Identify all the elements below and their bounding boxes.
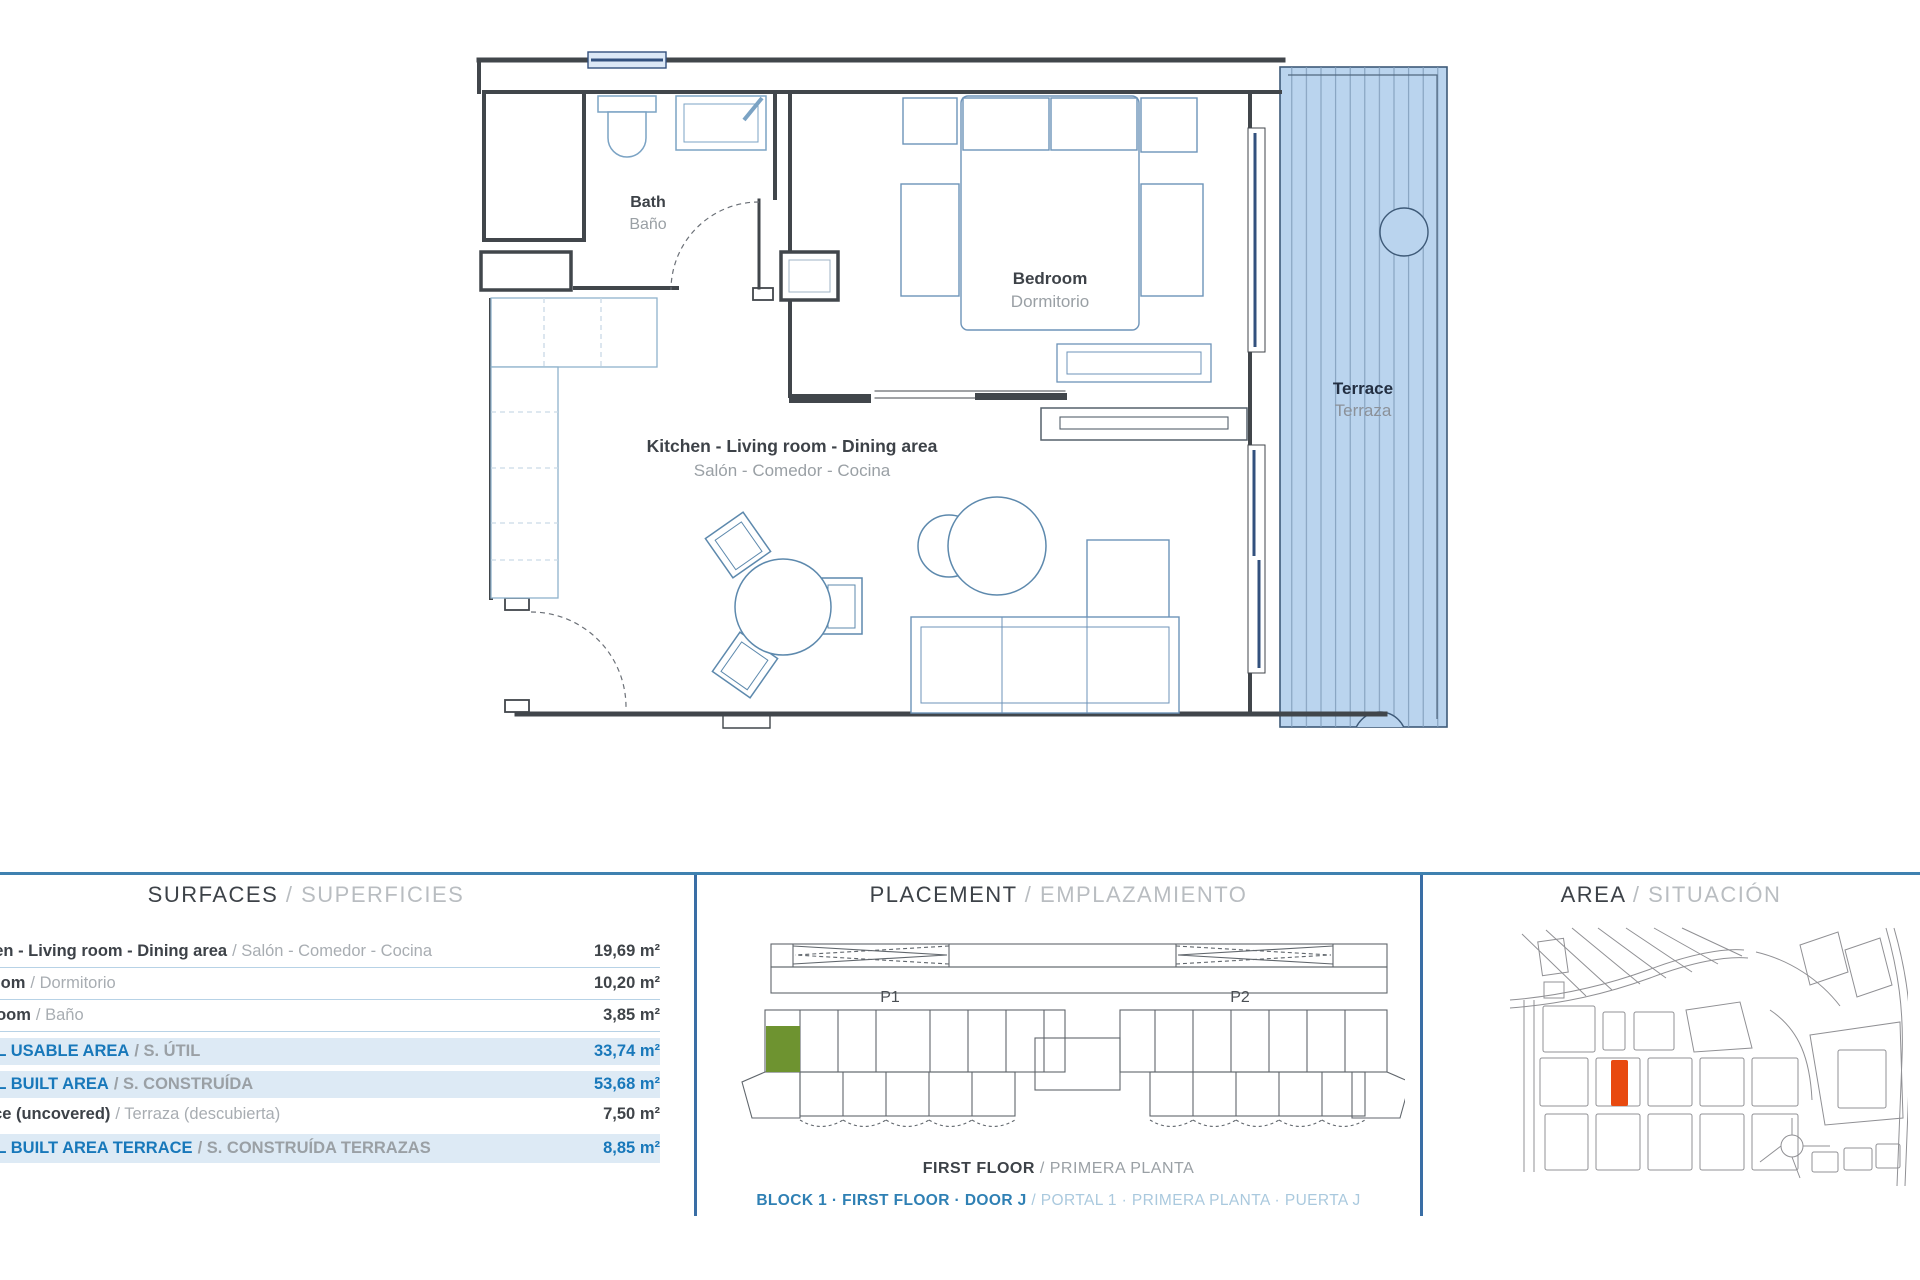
bedroom-label-es: Dormitorio bbox=[1011, 292, 1089, 311]
surface-row: Kitchen - Living room - Dining area Saló… bbox=[0, 936, 660, 968]
area-map bbox=[1508, 926, 1908, 1188]
surface-row: Terrace (uncovered) Terraza (descubierta… bbox=[0, 1098, 660, 1130]
surface-row-label-es: S. CONSTRUÍDA bbox=[114, 1075, 253, 1094]
surface-row-value: 19,69 m² bbox=[594, 942, 660, 961]
surface-row-label-en: Bathroom bbox=[0, 1006, 31, 1025]
surface-row: TOTAL BUILT AREA S. CONSTRUÍDA 53,68 m² bbox=[0, 1071, 660, 1098]
surfaces-title-es: SUPERFICIES bbox=[278, 882, 464, 907]
floor-caption-en: FIRST FLOOR bbox=[923, 1160, 1035, 1177]
highlighted-unit bbox=[766, 1026, 800, 1072]
placement-unit-caption: BLOCK 1 · FIRST FLOOR · DOOR JPORTAL 1 ·… bbox=[697, 1192, 1420, 1210]
toilet-icon bbox=[598, 96, 656, 157]
dining-set-icon bbox=[705, 512, 862, 698]
floor-plan-brochure-page: { "floor_plan": { "rooms": { "bath": {"e… bbox=[0, 0, 1920, 1280]
terrace-label-es: Terraza bbox=[1335, 401, 1392, 420]
surface-row-label-en: Kitchen - Living room - Dining area bbox=[0, 942, 227, 961]
surface-row-value: 33,74 m² bbox=[594, 1042, 660, 1061]
terrace-sliding-door bbox=[1248, 445, 1265, 673]
surface-row-value: 53,68 m² bbox=[594, 1075, 660, 1094]
surface-row: Bedroom Dormitorio 10,20 m² bbox=[0, 968, 660, 1000]
surface-row-label-es: Terraza (descubierta) bbox=[115, 1105, 280, 1124]
floor-caption-es: PRIMERA PLANTA bbox=[1035, 1160, 1194, 1177]
surface-row-label-es: Baño bbox=[36, 1006, 84, 1025]
bedroom-window bbox=[1248, 128, 1265, 352]
bath-door-arc bbox=[671, 202, 759, 290]
placement-floor-caption: FIRST FLOORPRIMERA PLANTA bbox=[697, 1160, 1420, 1178]
block-p2-label: P2 bbox=[1230, 989, 1250, 1006]
block-p1-label: P1 bbox=[880, 989, 900, 1006]
surface-row-label-es: S. ÚTIL bbox=[134, 1042, 200, 1061]
entry-door-arc bbox=[531, 612, 626, 707]
sink-vanity-icon bbox=[676, 96, 766, 150]
kitchen-counter bbox=[491, 298, 657, 598]
surfaces-title: SURFACESSUPERFICIES bbox=[0, 882, 612, 908]
placement-title-es: EMPLAZAMIENTO bbox=[1017, 882, 1247, 907]
wardrobe-right-icon bbox=[1141, 184, 1203, 296]
terrace-label-en: Terrace bbox=[1333, 379, 1393, 398]
bath-label-en: Bath bbox=[630, 194, 666, 211]
placement-diagram: P1 P2 bbox=[735, 935, 1405, 1135]
unit-caption-es: PORTAL 1 · PRIMERA PLANTA · PUERTA J bbox=[1027, 1192, 1361, 1209]
surface-row-value: 8,85 m² bbox=[603, 1139, 660, 1158]
coffee-tables-icon bbox=[918, 497, 1046, 595]
surface-row-label-es: Salón - Comedor - Cocina bbox=[232, 942, 432, 961]
unit-caption-en: BLOCK 1 · FIRST FLOOR · DOOR J bbox=[756, 1192, 1026, 1209]
terrace-table-icon bbox=[1380, 208, 1428, 256]
surface-row-label-es: Dormitorio bbox=[30, 974, 115, 993]
floor-plan: Terrace Terraza bbox=[450, 35, 1470, 750]
dresser-icon bbox=[1057, 344, 1211, 382]
area-title-es: SITUACIÓN bbox=[1625, 882, 1781, 907]
surface-row-label-en: Terrace (uncovered) bbox=[0, 1105, 110, 1124]
living-label-es: Salón - Comedor - Cocina bbox=[694, 461, 891, 480]
surface-row-value: 3,85 m² bbox=[603, 1006, 660, 1025]
panels-top-border bbox=[0, 872, 1920, 875]
surface-row-label-es: S. CONSTRUÍDA TERRAZAS bbox=[198, 1139, 431, 1158]
tv-console-icon bbox=[1041, 408, 1247, 440]
nightstand-left-icon bbox=[903, 98, 957, 144]
placement-title: PLACEMENTEMPLAZAMIENTO bbox=[697, 882, 1420, 908]
surface-row-label-en: TOTAL BUILT AREA TERRACE bbox=[0, 1139, 193, 1158]
map-plot-highlight bbox=[1611, 1060, 1628, 1106]
surface-row-label-en: TOTAL BUILT AREA bbox=[0, 1075, 109, 1094]
surface-row-label-en: TOTAL USABLE AREA bbox=[0, 1042, 129, 1061]
living-label-en: Kitchen - Living room - Dining area bbox=[647, 436, 938, 456]
placement-title-en: PLACEMENT bbox=[870, 882, 1018, 907]
wardrobe-left-icon bbox=[901, 184, 959, 296]
terrace: Terrace Terraza bbox=[1280, 67, 1447, 750]
surface-row-label-en: Bedroom bbox=[0, 974, 25, 993]
panel-separator-2 bbox=[1420, 875, 1423, 1216]
surfaces-table: Kitchen - Living room - Dining area Saló… bbox=[0, 936, 660, 1163]
bath-window bbox=[588, 52, 666, 68]
surface-row: TOTAL BUILT AREA TERRACE S. CONSTRUÍDA T… bbox=[0, 1134, 660, 1163]
surface-row: TOTAL USABLE AREA S. ÚTIL 33,74 m² bbox=[0, 1038, 660, 1065]
area-title: AREASITUACIÓN bbox=[1422, 882, 1920, 908]
surface-row-value: 7,50 m² bbox=[603, 1105, 660, 1124]
area-title-en: AREA bbox=[1561, 882, 1626, 907]
bedroom-label-en: Bedroom bbox=[1013, 269, 1088, 288]
bath-label-es: Baño bbox=[629, 216, 666, 233]
surface-row: Bathroom Baño 3,85 m² bbox=[0, 1000, 660, 1032]
surface-row-value: 10,20 m² bbox=[594, 974, 660, 993]
nightstand-right-icon bbox=[1141, 98, 1197, 152]
dining-table-icon bbox=[735, 559, 831, 655]
surfaces-title-en: SURFACES bbox=[148, 882, 279, 907]
